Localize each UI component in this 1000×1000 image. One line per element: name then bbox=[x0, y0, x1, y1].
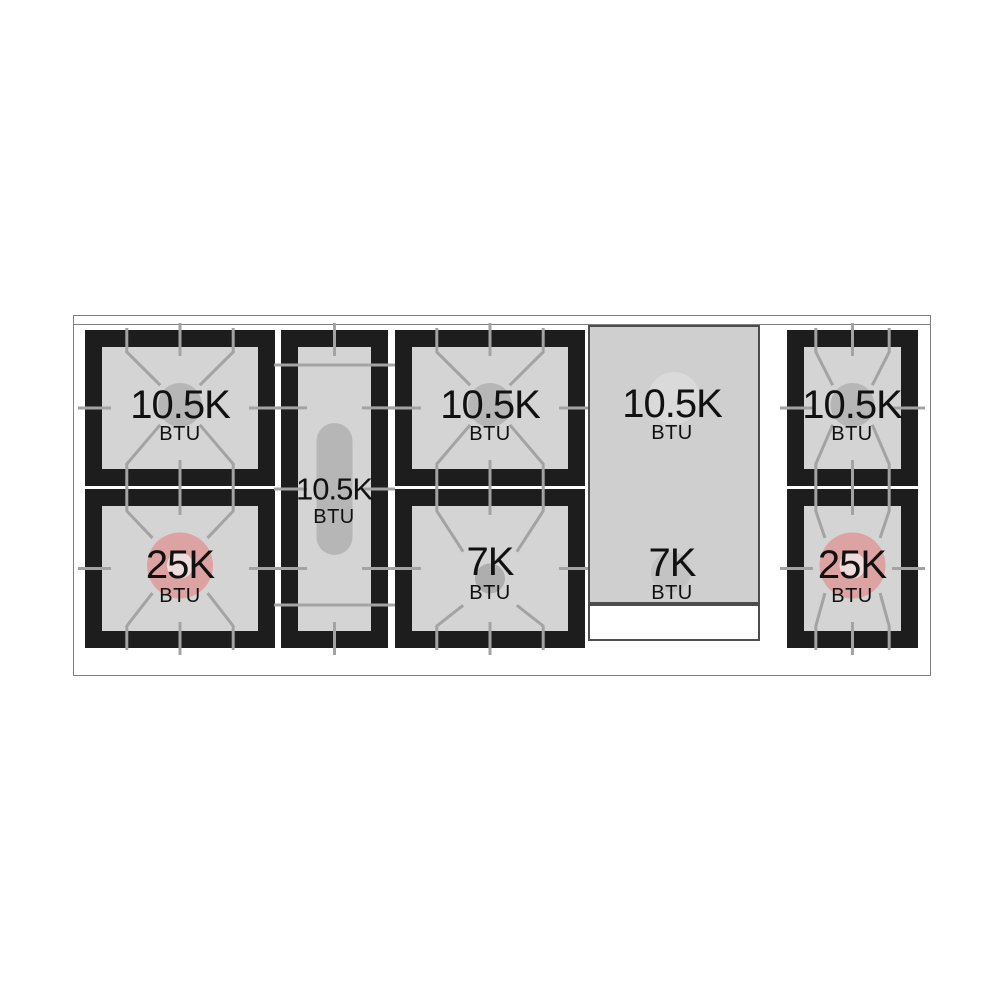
burner-power-label: 7K bbox=[649, 543, 696, 583]
burner-unit-label: BTU bbox=[651, 423, 693, 443]
burner-unit-label: BTU bbox=[469, 424, 511, 444]
burner-power-label: 10.5K bbox=[440, 385, 540, 425]
burner-power-label: 10.5K bbox=[296, 474, 372, 505]
burner-power-label: 10.5K bbox=[622, 384, 722, 424]
burner-power-label: 25K bbox=[146, 545, 214, 585]
page-background: 10.5K BTU 25K BTU 10.5K BTU 10.5K BTU 7K… bbox=[0, 0, 1000, 1000]
burner-unit-label: BTU bbox=[159, 424, 201, 444]
cooktop-back-ledge bbox=[74, 316, 930, 325]
burner-power-label: 10.5K bbox=[130, 385, 230, 425]
burner-unit-label: BTU bbox=[159, 586, 201, 606]
griddle-handle bbox=[588, 604, 760, 641]
burner-power-label: 7K bbox=[467, 542, 514, 582]
burner-power-label: 10.5K bbox=[802, 385, 902, 425]
burner-power-label: 25K bbox=[818, 545, 886, 585]
burner-unit-label: BTU bbox=[469, 583, 511, 603]
burner-unit-label: BTU bbox=[313, 507, 355, 527]
burner-unit-label: BTU bbox=[831, 586, 873, 606]
burner-unit-label: BTU bbox=[651, 583, 693, 603]
burner-unit-label: BTU bbox=[831, 424, 873, 444]
